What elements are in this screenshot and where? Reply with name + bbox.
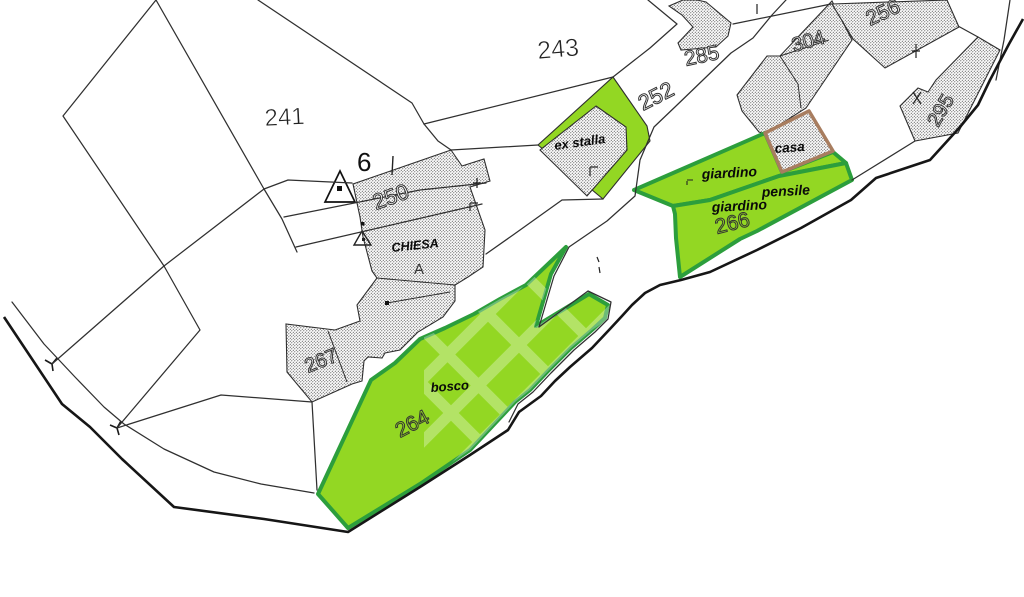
svg-text:241: 241: [264, 103, 305, 132]
svg-text:casa: casa: [774, 139, 805, 156]
svg-text:giardino: giardino: [700, 163, 757, 182]
svg-text:6: 6: [357, 147, 371, 177]
svg-text:243: 243: [536, 33, 580, 65]
svg-text:bosco: bosco: [430, 377, 469, 395]
svg-text:A: A: [414, 261, 424, 278]
svg-text:pensile: pensile: [760, 181, 810, 200]
